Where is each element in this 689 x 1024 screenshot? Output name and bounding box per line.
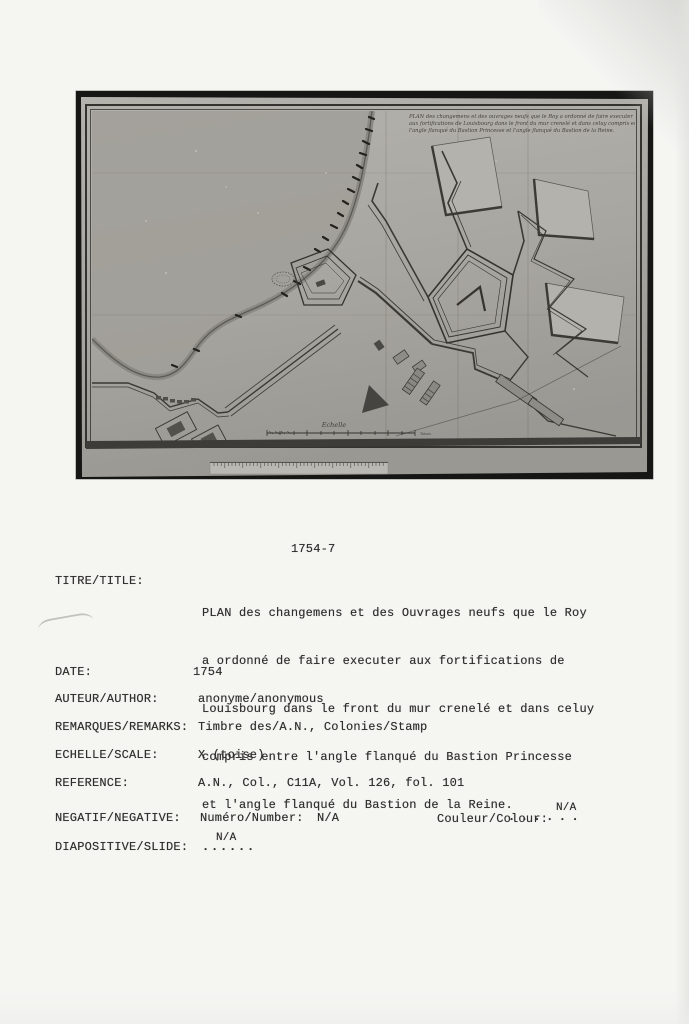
negative-label: NEGATIF/NEGATIVE: bbox=[55, 810, 181, 826]
remarks-label: REMARQUES/REMARKS: bbox=[55, 719, 188, 735]
reference-label: REFERENCE: bbox=[55, 775, 129, 791]
title-line-2: a ordonné de faire executer aux fortific… bbox=[202, 653, 594, 669]
date-label: DATE: bbox=[55, 664, 92, 680]
title-line-1: PLAN des changemens et des Ouvrages neuf… bbox=[202, 605, 594, 621]
map-inscription: PLAN des changemens et des ouvrages neuf… bbox=[408, 113, 645, 134]
negative-number-label: Numéro/Number: bbox=[200, 810, 304, 826]
title-value: PLAN des changemens et des Ouvrages neuf… bbox=[202, 573, 594, 845]
author-value: anonyme/anonymous bbox=[198, 691, 324, 707]
pencil-smudge bbox=[37, 611, 95, 638]
negative-number-value: N/A bbox=[317, 810, 339, 826]
item-number-heading: 1754-7 bbox=[291, 541, 335, 557]
date-value: 1754 bbox=[193, 664, 223, 680]
slide-dots: ...... bbox=[202, 839, 256, 855]
scale-field-value: X (toise) bbox=[198, 747, 265, 763]
remarks-value: Timbre des/A.N., Colonies/Stamp bbox=[198, 719, 427, 735]
reference-value: A.N., Col., C11A, Vol. 126, fol. 101 bbox=[198, 775, 464, 791]
title-label: TITRE/TITLE: bbox=[55, 573, 144, 589]
map-photograph: Echelle Toises PLAN des changemens et de… bbox=[76, 91, 653, 479]
scale-unit-label: Toises bbox=[420, 432, 431, 436]
inscription-line-2: aux fortifications de Louisbourg dans le… bbox=[409, 120, 645, 127]
slide-label: DIAPOSITIVE/SLIDE: bbox=[55, 839, 188, 855]
inscription-line-1: PLAN des changemens et des ouvrages neuf… bbox=[408, 113, 633, 120]
inscription-line-3: l'angle flanqué du Bastion Princesse et … bbox=[409, 127, 615, 134]
author-label: AUTEUR/AUTHOR: bbox=[55, 691, 159, 707]
scale-field-label: ECHELLE/SCALE: bbox=[55, 747, 159, 763]
scale-label: Echelle bbox=[321, 421, 347, 429]
photo-ruler-strip bbox=[210, 462, 388, 474]
archive-card-page: Echelle Toises PLAN des changemens et de… bbox=[0, 0, 689, 1024]
fortification-plan-svg: Echelle Toises PLAN des changemens et de… bbox=[76, 91, 653, 479]
right-edge-shadow bbox=[675, 0, 689, 1024]
bottom-edge-shadow bbox=[0, 994, 689, 1024]
negative-colour-dots: ...... bbox=[508, 809, 584, 825]
